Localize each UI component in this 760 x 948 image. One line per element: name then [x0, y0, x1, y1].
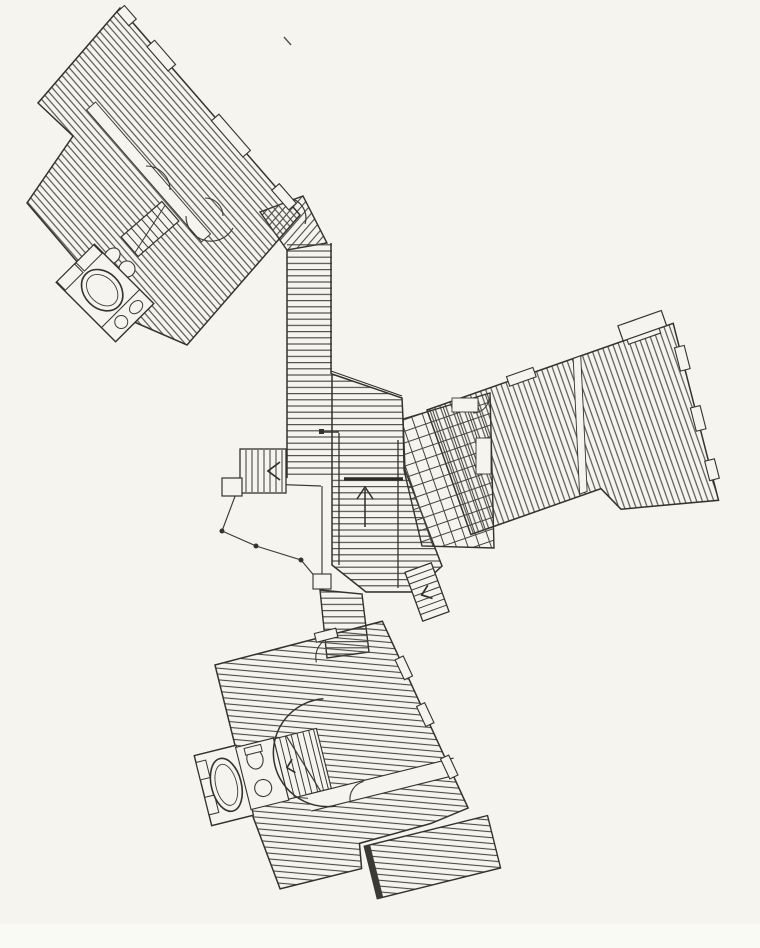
corridor-run: [287, 243, 332, 478]
scan-edge-strip: [0, 924, 760, 948]
stair-landing: [222, 478, 242, 496]
sunroom-opening: [476, 438, 491, 474]
wall-post: [319, 429, 324, 434]
gridded-sunroom: [403, 393, 494, 548]
connector-landing: [313, 574, 331, 589]
floor-plan-page: Floor plan: three rotated wings joined b…: [0, 0, 760, 948]
sunroom-opening: [452, 398, 478, 412]
floor-plan-image: [0, 0, 760, 948]
